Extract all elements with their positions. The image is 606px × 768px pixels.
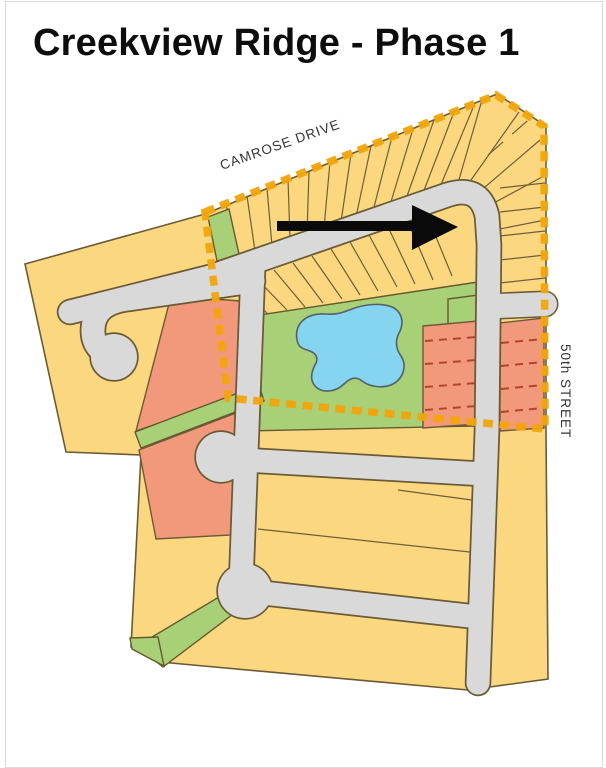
- green-strip-east: [448, 295, 478, 325]
- culdesac-bulb-mid: [196, 432, 246, 482]
- mid-cross-road: [226, 459, 484, 474]
- plat-page: Creekview Ridge - Phase 1: [0, 0, 606, 768]
- culdesac-bulb-west: [91, 334, 137, 380]
- street-spur-road: [498, 304, 545, 306]
- middle-road: [241, 268, 253, 585]
- green-corner-square: [130, 637, 164, 666]
- salmon-lot-east-b: [500, 318, 544, 431]
- plat-map-svg: CAMROSE DRIVE 50th STREET: [0, 0, 606, 768]
- street-label-camrose-drive: CAMROSE DRIVE: [218, 117, 342, 173]
- street-label-50th-street: 50th STREET: [558, 344, 573, 438]
- pond: [297, 304, 404, 391]
- culdesac-bulb-south: [218, 564, 272, 618]
